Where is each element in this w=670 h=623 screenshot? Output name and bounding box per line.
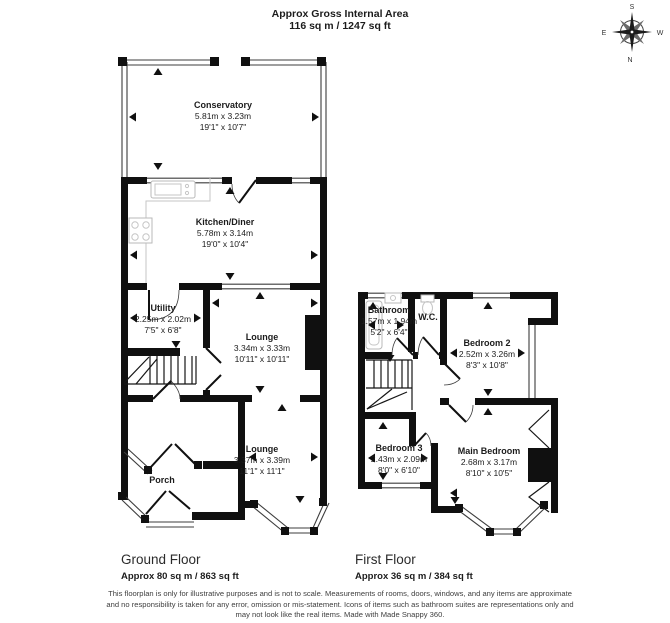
- svg-text:1.57m x 1.94m: 1.57m x 1.94m: [361, 316, 417, 326]
- header: Approx Gross Internal Area 116 sq m / 12…: [272, 8, 409, 32]
- ground-floor-plan: Conservatory 5.81m x 3.23m 19'1" x 10'7"…: [118, 57, 329, 535]
- stairs-first: [366, 360, 412, 410]
- svg-text:Main Bedroom: Main Bedroom: [458, 446, 521, 456]
- svg-text:5.81m x 3.23m: 5.81m x 3.23m: [195, 111, 251, 121]
- sink-icon: [151, 181, 195, 198]
- compass-w-label: W: [657, 30, 664, 37]
- svg-text:11'1" x 11'1": 11'1" x 11'1": [239, 466, 284, 476]
- first-floor-plan: Bathroom 1.57m x 1.94m 5'2" x 6'4" W.C. …: [358, 292, 558, 536]
- room-label-wc: W.C.: [418, 312, 438, 322]
- svg-text:19'1" x 10'7": 19'1" x 10'7": [200, 122, 247, 132]
- lounge1-double-doors: [206, 348, 221, 390]
- basin-icon: [385, 293, 401, 303]
- svg-text:Bathroom: Bathroom: [368, 305, 411, 315]
- room-label-conservatory: Conservatory 5.81m x 3.23m 19'1" x 10'7": [194, 100, 252, 132]
- svg-text:8'10" x 10'5": 8'10" x 10'5": [466, 468, 513, 478]
- first-floor-caption: First Floor Approx 36 sq m / 384 sq ft: [355, 552, 474, 582]
- wc-door-arc: [418, 337, 439, 355]
- compass-icon: S N E W: [602, 4, 664, 64]
- compass-s-label: S: [630, 4, 635, 11]
- porch-inner-doors: [150, 444, 197, 468]
- svg-text:Bedroom 2: Bedroom 2: [463, 338, 510, 348]
- room-label-bedroom2: Bedroom 2 2.52m x 3.26m 8'3" x 10'8": [459, 338, 515, 370]
- bedroom2-door-arc: [444, 363, 460, 385]
- svg-text:Lounge: Lounge: [246, 332, 279, 342]
- svg-text:19'0" x 10'4": 19'0" x 10'4": [202, 239, 249, 249]
- room-label-bedroom3: Bedroom 3 2.43m x 2.09m 8'0" x 6'10": [371, 443, 427, 475]
- svg-text:7'5" x 6'8": 7'5" x 6'8": [144, 325, 181, 335]
- svg-text:3.34m x 3.33m: 3.34m x 3.33m: [234, 343, 290, 353]
- kitchen-door-arc: [232, 180, 256, 203]
- bedroom2-side-window: [529, 325, 535, 398]
- svg-text:3.37m x 3.39m: 3.37m x 3.39m: [234, 455, 290, 465]
- svg-text:Lounge: Lounge: [246, 444, 279, 454]
- room-label-utility: Utility 2.25m x 2.02m 7'5" x 6'8": [135, 303, 191, 335]
- porch-corner-window: [118, 492, 194, 527]
- kitchen-window-2: [292, 177, 310, 184]
- hob-icon: [129, 218, 152, 243]
- lounge1-window: [222, 283, 290, 290]
- page-subtitle: 116 sq m / 1247 sq ft: [289, 20, 391, 32]
- svg-text:10'11" x 10'11": 10'11" x 10'11": [235, 354, 290, 364]
- compass-e-label: E: [602, 30, 607, 37]
- room-label-kitchen: Kitchen/Diner 5.78m x 3.14m 19'0" x 10'4…: [196, 217, 255, 249]
- disclaimer-text: This floorplan is only for illustrative …: [102, 589, 578, 621]
- room-label-porch: Porch: [149, 475, 175, 485]
- room-label-main-bedroom: Main Bedroom 2.68m x 3.17m 8'10" x 10'5": [458, 446, 521, 478]
- stairs-ground: [124, 356, 196, 384]
- svg-text:5.78m x 3.14m: 5.78m x 3.14m: [197, 228, 253, 238]
- floorplan-page: Approx Gross Internal Area 116 sq m / 12…: [0, 0, 670, 623]
- ground-floor-caption: Ground Floor Approx 80 sq m / 863 sq ft: [121, 552, 240, 582]
- svg-text:8'3" x 10'8": 8'3" x 10'8": [466, 360, 508, 370]
- lounge2-bay-window: [250, 498, 329, 535]
- compass-n-label: N: [627, 57, 632, 64]
- svg-text:2.43m x 2.09m: 2.43m x 2.09m: [371, 454, 427, 464]
- chimney-breast: [305, 315, 320, 370]
- svg-text:5'2" x 6'4": 5'2" x 6'4": [370, 327, 407, 337]
- svg-text:2.68m x 3.17m: 2.68m x 3.17m: [461, 457, 517, 467]
- svg-text:8'0" x 6'10": 8'0" x 6'10": [378, 465, 420, 475]
- svg-text:Kitchen/Diner: Kitchen/Diner: [196, 217, 255, 227]
- wardrobe-divider: [528, 448, 551, 482]
- svg-text:Approx 80 sq m / 863 sq ft: Approx 80 sq m / 863 sq ft: [121, 571, 240, 582]
- bedroom3-window: [382, 482, 420, 489]
- svg-text:2.25m x 2.02m: 2.25m x 2.02m: [135, 314, 191, 324]
- main-bedroom-door-arc: [449, 405, 473, 422]
- floorplan-canvas: Approx Gross Internal Area 116 sq m / 12…: [0, 0, 670, 623]
- page-title: Approx Gross Internal Area: [272, 8, 409, 20]
- svg-text:Utility: Utility: [150, 303, 175, 313]
- room-label-lounge1: Lounge 3.34m x 3.33m 10'11" x 10'11": [234, 332, 290, 364]
- svg-text:Approx 36 sq m / 384 sq ft: Approx 36 sq m / 384 sq ft: [355, 571, 474, 582]
- svg-text:Bedroom 3: Bedroom 3: [375, 443, 422, 453]
- svg-text:Ground Floor: Ground Floor: [121, 552, 201, 567]
- bedroom2-top-window: [473, 292, 510, 299]
- svg-text:2.52m x 3.26m: 2.52m x 3.26m: [459, 349, 515, 359]
- porch-front-doors: [146, 491, 190, 514]
- svg-text:First Floor: First Floor: [355, 552, 416, 567]
- svg-text:Conservatory: Conservatory: [194, 100, 252, 110]
- main-bedroom-bay-window: [455, 501, 548, 536]
